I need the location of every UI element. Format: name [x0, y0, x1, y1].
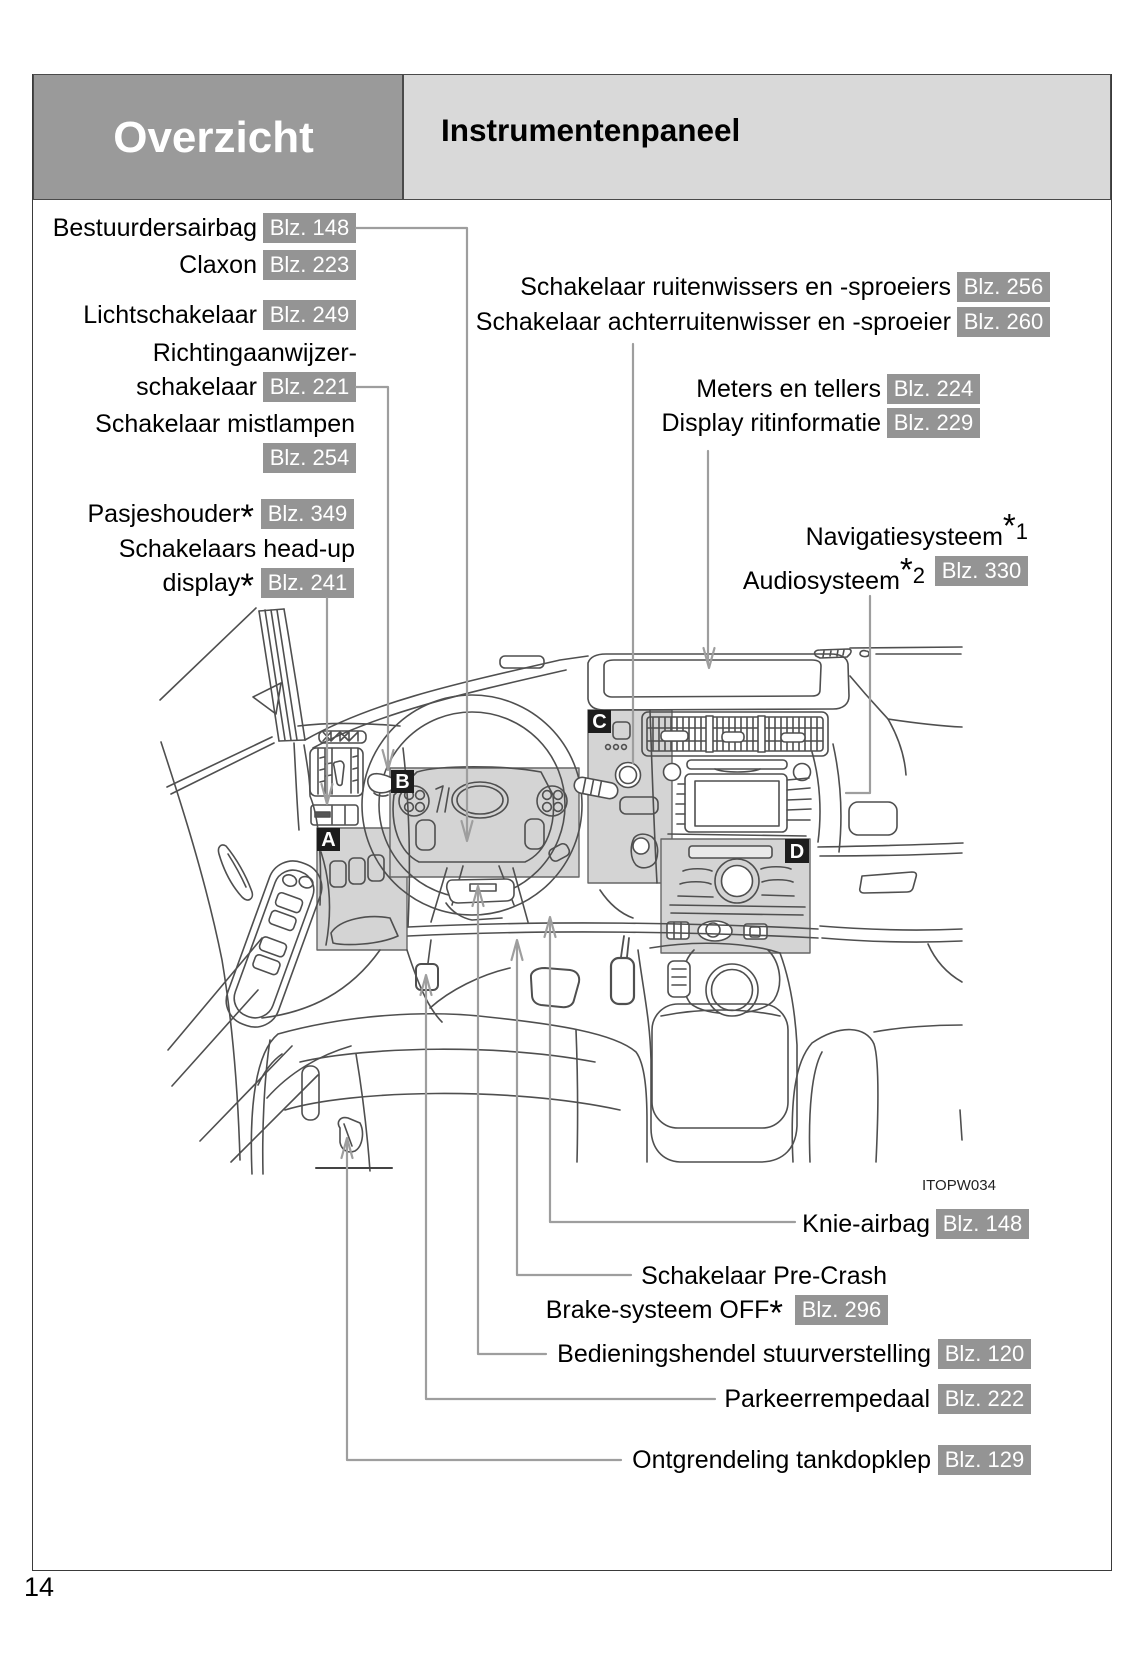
svg-text:B: B — [395, 771, 409, 793]
svg-text:A: A — [321, 829, 335, 851]
svg-text:D: D — [790, 841, 804, 863]
svg-text:C: C — [592, 711, 606, 733]
